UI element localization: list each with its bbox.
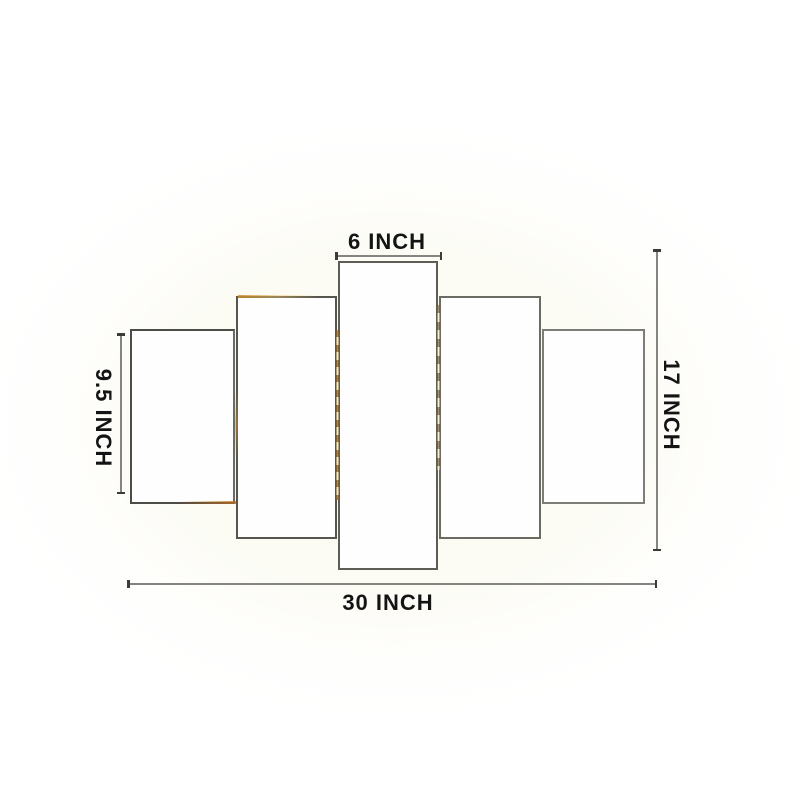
dimension-label-total-height: 17 INCH	[658, 359, 684, 450]
dimension-label-side-panel-height: 9.5 INCH	[90, 369, 116, 467]
dimension-line-bottom	[128, 583, 656, 585]
dimension-diagram: 6 INCH 9.5 INCH 17 INCH 30 INCH	[0, 0, 800, 800]
panel-2-left-inner	[236, 296, 337, 539]
dimension-label-total-width: 30 INCH	[342, 590, 433, 616]
panel-3-center	[338, 261, 438, 570]
dimension-line-top	[336, 255, 441, 257]
dimension-label-center-panel-width: 6 INCH	[348, 229, 426, 255]
panel-4-right-inner	[439, 296, 541, 539]
panel-1-left-outer	[130, 329, 235, 504]
dimension-line-left	[120, 334, 122, 493]
panel-5-right-outer	[542, 329, 645, 504]
